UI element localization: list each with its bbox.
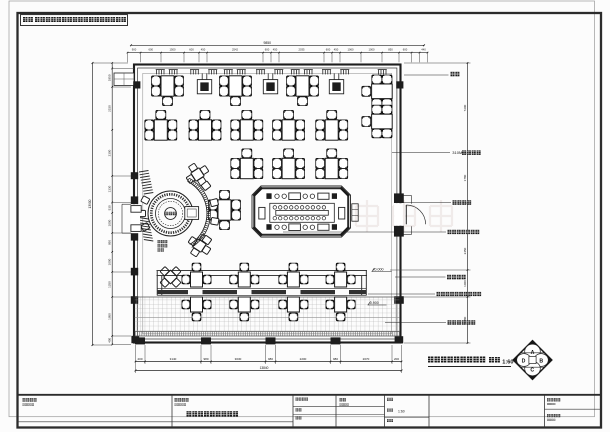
svg-text:900: 900 [132, 48, 137, 52]
svg-text:1000: 1000 [108, 258, 112, 265]
svg-text:600: 600 [403, 48, 408, 52]
svg-text:1850: 1850 [108, 74, 112, 81]
svg-text:1:60: 1:60 [398, 409, 405, 413]
svg-text:850: 850 [388, 48, 393, 52]
svg-text:1780: 1780 [463, 174, 467, 181]
svg-text:3140: 3140 [170, 357, 177, 361]
svg-text:400: 400 [108, 337, 112, 342]
svg-text:980: 980 [333, 357, 338, 361]
svg-text:440: 440 [421, 48, 426, 52]
svg-text:9850: 9850 [264, 41, 272, 45]
svg-text:450: 450 [201, 48, 206, 52]
svg-text:600: 600 [326, 48, 331, 52]
svg-text:1060: 1060 [348, 48, 354, 52]
svg-text:2150: 2150 [108, 105, 112, 112]
svg-text:13840: 13840 [260, 366, 269, 370]
svg-text:C: C [530, 368, 534, 374]
svg-text:530: 530 [108, 205, 112, 210]
svg-text:B: B [539, 359, 543, 365]
svg-text:310M: 310M [452, 150, 462, 155]
svg-text:980: 980 [203, 357, 208, 361]
svg-text:2300: 2300 [108, 149, 112, 156]
svg-text:1:60: 1:60 [502, 360, 513, 366]
svg-text:3030: 3030 [235, 357, 242, 361]
svg-text:A: A [531, 350, 535, 356]
svg-text:13900: 13900 [88, 199, 92, 208]
svg-text:980: 980 [268, 357, 273, 361]
svg-text:600: 600 [148, 48, 153, 52]
svg-text:2542: 2542 [232, 48, 238, 52]
svg-text:2200: 2200 [300, 357, 307, 361]
svg-text:7200: 7200 [463, 104, 467, 111]
svg-text:600: 600 [265, 48, 270, 52]
svg-text:1950: 1950 [108, 313, 112, 320]
svg-text:450: 450 [273, 48, 278, 52]
svg-text:±0.000: ±0.000 [373, 267, 384, 271]
svg-text:-0.900: -0.900 [369, 301, 379, 305]
svg-text:1500: 1500 [170, 48, 176, 52]
svg-text:D: D [522, 359, 526, 365]
svg-text:2450: 2450 [463, 247, 467, 254]
svg-text:1000: 1000 [369, 48, 375, 52]
svg-text:950: 950 [108, 240, 112, 245]
svg-text:2035: 2035 [299, 48, 305, 52]
svg-text:600: 600 [189, 48, 194, 52]
svg-text:1250: 1250 [108, 281, 112, 288]
svg-text:1000: 1000 [108, 219, 112, 226]
svg-text:200: 200 [137, 357, 142, 361]
svg-text:450: 450 [334, 48, 339, 52]
svg-text:1330: 1330 [108, 185, 112, 192]
svg-text:2070: 2070 [363, 357, 370, 361]
svg-text:200: 200 [394, 357, 399, 361]
svg-text:1060: 1060 [463, 280, 467, 287]
